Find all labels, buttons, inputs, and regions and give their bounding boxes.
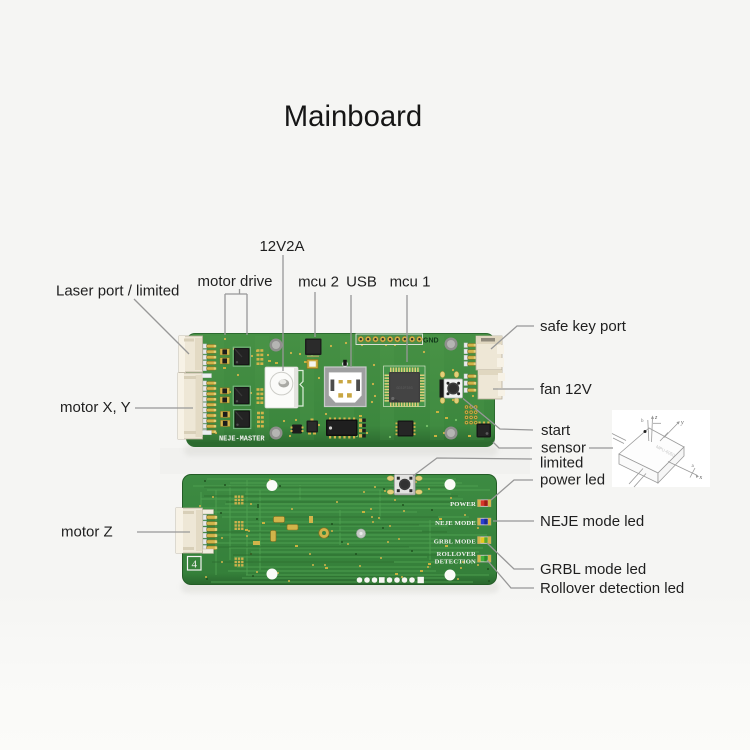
svg-text:Mainboard: Mainboard: [284, 100, 422, 133]
svg-text:power led: power led: [540, 472, 605, 489]
svg-text:USB: USB: [346, 274, 377, 291]
svg-text:Laser port / limited: Laser port / limited: [56, 283, 179, 300]
svg-text:Rollover detection led: Rollover detection led: [540, 580, 684, 597]
svg-text:NEJE MODE: NEJE MODE: [435, 520, 476, 527]
svg-text:NEJE mode led: NEJE mode led: [540, 513, 644, 530]
svg-text:motor X, Y: motor X, Y: [60, 399, 131, 416]
svg-text:GRBL mode led: GRBL mode led: [540, 561, 646, 578]
svg-text:GND: GND: [423, 338, 439, 345]
svg-text:mcu 2: mcu 2: [298, 274, 339, 291]
svg-text:mcu 1: mcu 1: [390, 274, 431, 291]
svg-text:limited: limited: [540, 455, 583, 472]
svg-text:y: y: [680, 420, 684, 426]
svg-text:DETECTION: DETECTION: [435, 559, 476, 566]
svg-text:GRBL MODE: GRBL MODE: [434, 539, 477, 546]
svg-text:start: start: [541, 422, 571, 439]
svg-text:fan 12V: fan 12V: [540, 381, 592, 398]
svg-text:motor Z: motor Z: [61, 524, 113, 541]
svg-text:12V2A: 12V2A: [259, 238, 304, 255]
svg-text:NEJE-MASTER: NEJE-MASTER: [219, 436, 265, 444]
svg-text:ROLLOVER: ROLLOVER: [437, 551, 476, 558]
svg-text:safe key port: safe key port: [540, 318, 627, 335]
svg-text:x: x: [699, 475, 703, 481]
svg-text:POWER: POWER: [450, 501, 476, 508]
svg-text:4: 4: [192, 559, 198, 571]
svg-text:GD32F303: GD32F303: [396, 387, 412, 391]
svg-text:motor drive: motor drive: [197, 273, 272, 290]
